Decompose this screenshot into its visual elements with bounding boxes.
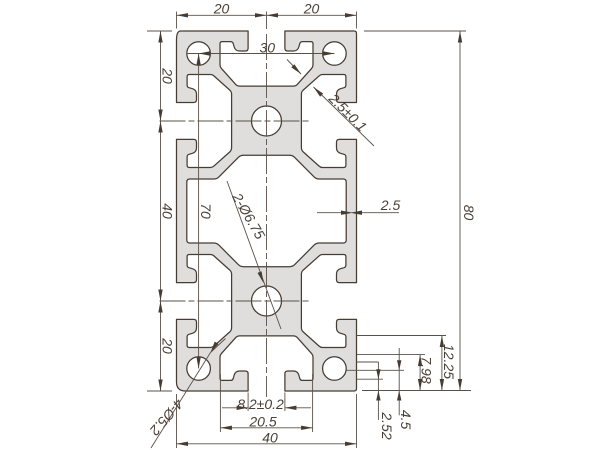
svg-text:7.98: 7.98 [419,356,435,383]
svg-text:4.5: 4.5 [398,410,414,430]
svg-text:2.52: 2.52 [379,411,395,439]
svg-text:20: 20 [159,67,175,84]
svg-text:40: 40 [159,203,175,219]
svg-text:30: 30 [260,39,276,55]
svg-text:80: 80 [461,205,477,221]
svg-text:70: 70 [198,203,214,219]
svg-text:2.5: 2.5 [380,197,401,213]
svg-text:20: 20 [213,0,230,16]
svg-text:20: 20 [159,337,175,354]
svg-text:8.2±0.2: 8.2±0.2 [237,396,284,412]
svg-text:40: 40 [262,429,278,445]
svg-text:12.25: 12.25 [441,344,457,379]
svg-text:20: 20 [303,0,320,16]
svg-text:20.5: 20.5 [248,414,276,430]
